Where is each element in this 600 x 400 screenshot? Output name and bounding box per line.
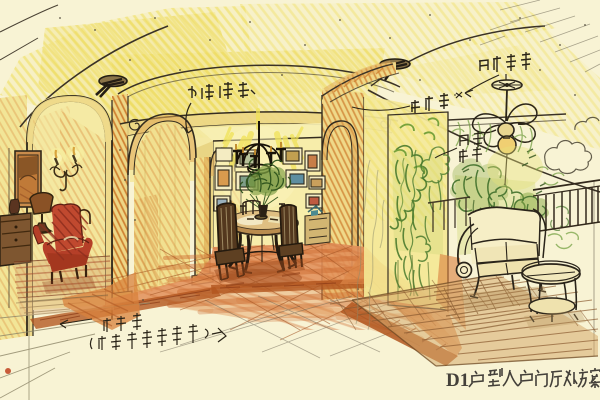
svg-text:D1: D1 bbox=[446, 370, 469, 391]
